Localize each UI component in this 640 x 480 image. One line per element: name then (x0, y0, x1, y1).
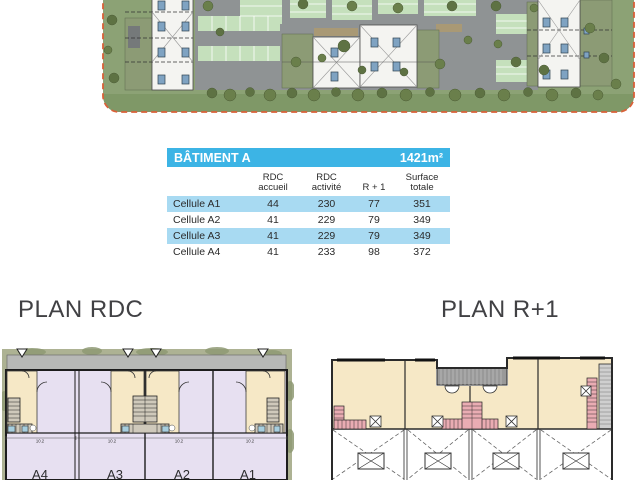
building-total-area: 1421m² (400, 151, 443, 165)
svg-text:10.2: 10.2 (175, 439, 184, 444)
col-header-surface-totale: Surface totale (394, 167, 450, 196)
table-column-headers: RDC accueil RDC activité R + 1 Surface t… (167, 167, 450, 196)
svg-text:A2: A2 (174, 467, 190, 480)
sidewalk-band (7, 355, 286, 370)
svg-text:A3: A3 (107, 467, 123, 480)
col-header-rdc-activite: RDC activité (299, 167, 354, 196)
rooflight-rects (358, 453, 589, 469)
surface-table: BÂTIMENT A 1421m² RDC accueil RDC activi… (167, 148, 450, 260)
table-row: Cellule A1 44 230 77 351 (167, 196, 450, 212)
void-walls (404, 429, 540, 480)
svg-text:A1: A1 (240, 467, 256, 480)
col-header-r-plus-1: R + 1 (354, 167, 394, 196)
col-header-rdc-accueil: RDC accueil (247, 167, 299, 196)
plan-r1-title: PLAN R+1 (441, 296, 559, 324)
building-right (527, 0, 612, 87)
table-title-bar: BÂTIMENT A 1421m² (167, 148, 450, 167)
table-row: Cellule A3 41 229 79 349 (167, 228, 450, 244)
plan-rdc-title: PLAN RDC (18, 296, 143, 324)
site-plan-aerial-view (100, 0, 640, 116)
svg-text:10.2: 10.2 (36, 439, 45, 444)
walkway-stairs (437, 368, 507, 385)
site-plan-ground (103, 0, 634, 112)
plan-rdc-drawing: 10.2 10.2 10.2 10.2 A4 A3 A2 A1 (2, 346, 294, 480)
building-middle (282, 25, 439, 88)
table-row: Cellule A4 41 233 98 372 (167, 244, 450, 260)
plan-r1-drawing (325, 350, 625, 480)
svg-text:10.2: 10.2 (108, 439, 117, 444)
terrace-hatched (599, 364, 612, 429)
brochure-page: BÂTIMENT A 1421m² RDC accueil RDC activi… (0, 0, 640, 480)
table-row: Cellule A2 41 229 79 349 (167, 212, 450, 228)
svg-text:A4: A4 (32, 467, 48, 480)
building-name: BÂTIMENT A (174, 151, 251, 165)
svg-text:10.2: 10.2 (246, 439, 255, 444)
